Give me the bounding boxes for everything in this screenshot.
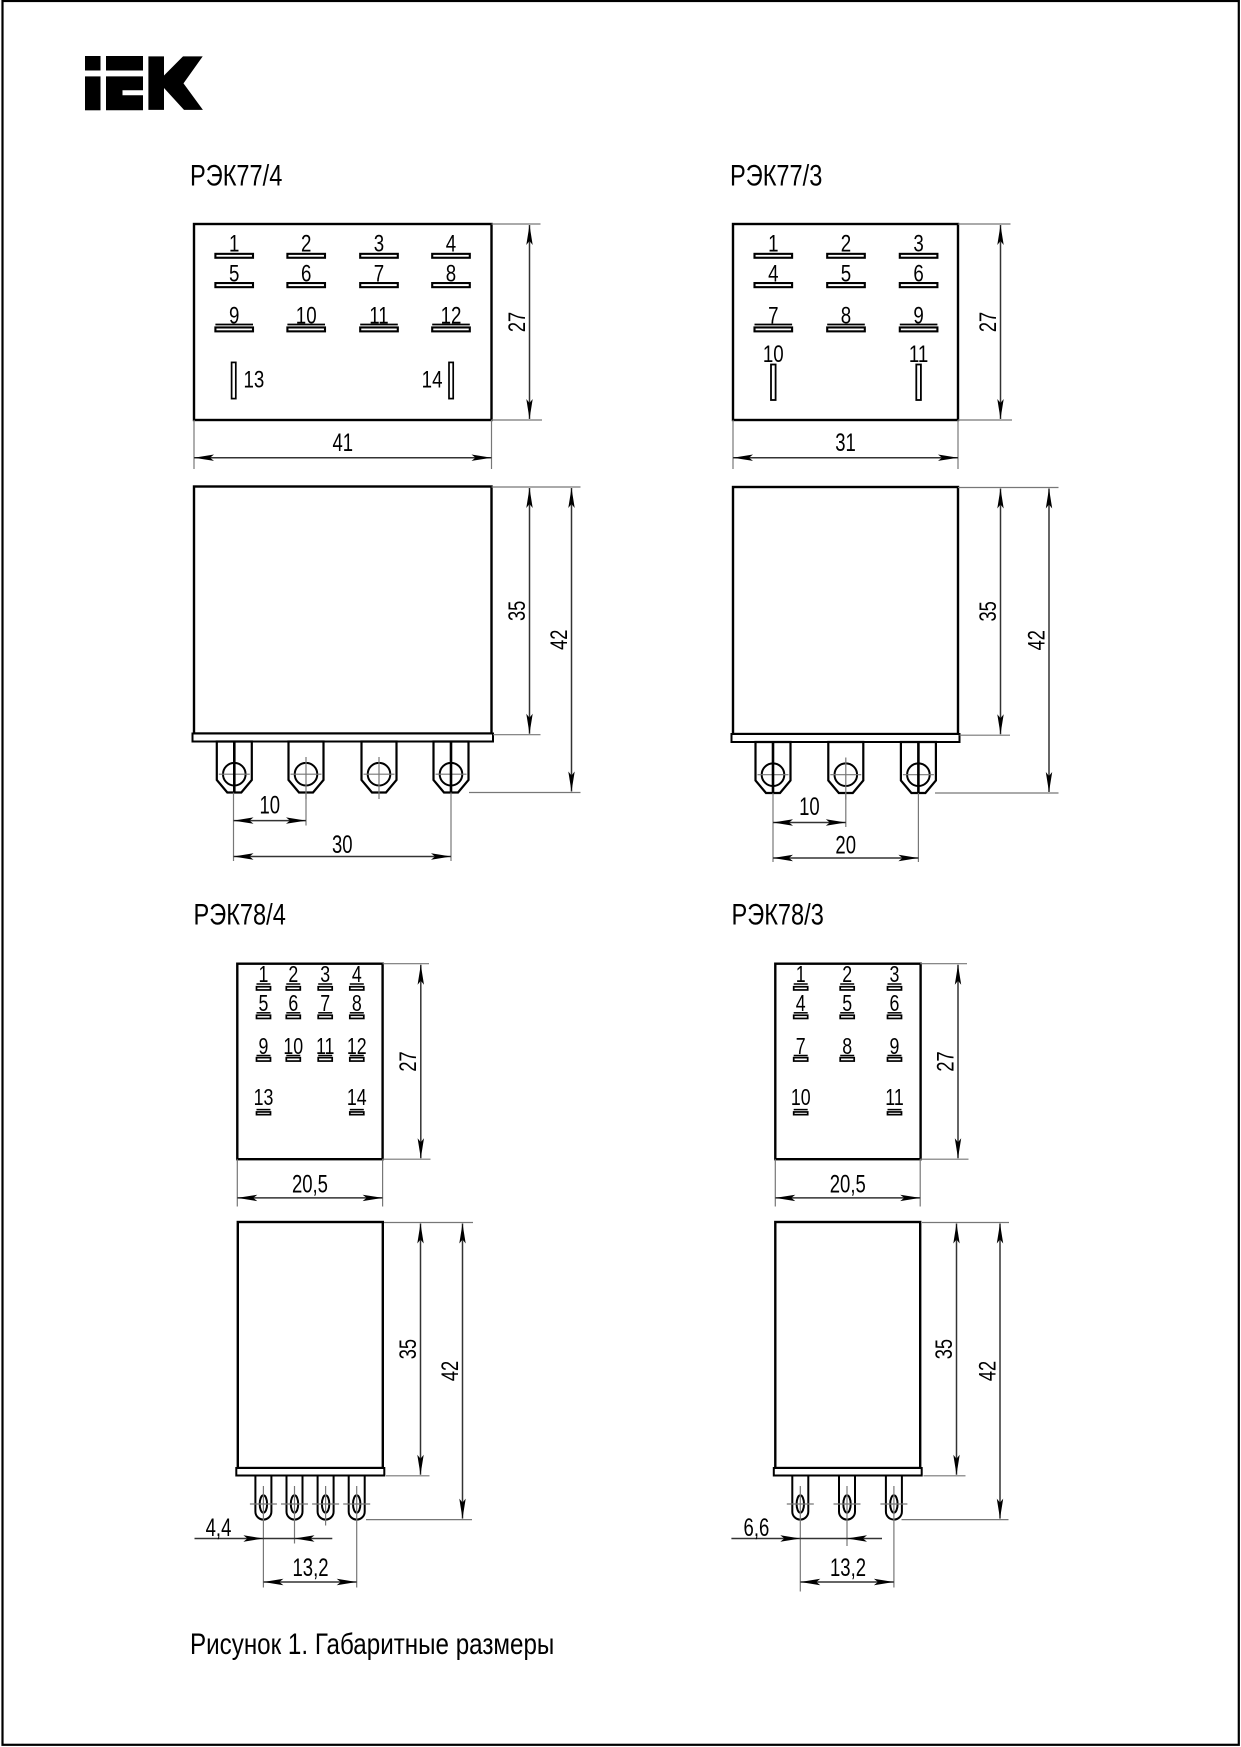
svg-text:14: 14 — [347, 1085, 367, 1111]
svg-text:35: 35 — [975, 601, 1002, 621]
svg-text:35: 35 — [931, 1339, 958, 1359]
svg-text:14: 14 — [422, 366, 443, 393]
svg-text:35: 35 — [504, 601, 531, 621]
svg-text:35: 35 — [395, 1339, 422, 1359]
svg-text:42: 42 — [546, 630, 573, 650]
svg-text:10: 10 — [763, 341, 784, 368]
svg-text:Рисунок 1. Габаритные размеры: Рисунок 1. Габаритные размеры — [190, 1628, 554, 1661]
svg-text:6,6: 6,6 — [744, 1513, 770, 1541]
svg-text:РЭК78/4: РЭК78/4 — [194, 898, 286, 931]
svg-text:4,4: 4,4 — [206, 1513, 232, 1541]
svg-text:10: 10 — [799, 792, 820, 820]
svg-text:42: 42 — [1023, 630, 1050, 650]
svg-text:11: 11 — [885, 1085, 903, 1111]
svg-text:27: 27 — [932, 1051, 959, 1071]
svg-text:РЭК77/3: РЭК77/3 — [730, 159, 822, 192]
svg-text:10: 10 — [791, 1085, 811, 1111]
svg-text:13: 13 — [254, 1085, 274, 1111]
svg-text:42: 42 — [974, 1361, 1001, 1381]
svg-text:27: 27 — [975, 312, 1002, 332]
svg-text:42: 42 — [437, 1361, 464, 1381]
svg-text:31: 31 — [835, 428, 856, 456]
svg-text:13,2: 13,2 — [292, 1553, 328, 1581]
svg-text:27: 27 — [395, 1051, 422, 1071]
svg-text:20: 20 — [835, 831, 856, 859]
svg-text:11: 11 — [909, 341, 928, 368]
svg-text:20,5: 20,5 — [292, 1170, 328, 1198]
svg-text:20,5: 20,5 — [830, 1170, 866, 1198]
svg-text:10: 10 — [259, 791, 280, 819]
svg-text:13,2: 13,2 — [830, 1553, 866, 1581]
svg-text:30: 30 — [332, 830, 353, 858]
svg-text:13: 13 — [244, 366, 265, 393]
svg-text:27: 27 — [504, 312, 531, 332]
svg-text:41: 41 — [332, 428, 353, 456]
svg-text:РЭК77/4: РЭК77/4 — [190, 159, 282, 192]
svg-text:РЭК78/3: РЭК78/3 — [732, 898, 824, 931]
